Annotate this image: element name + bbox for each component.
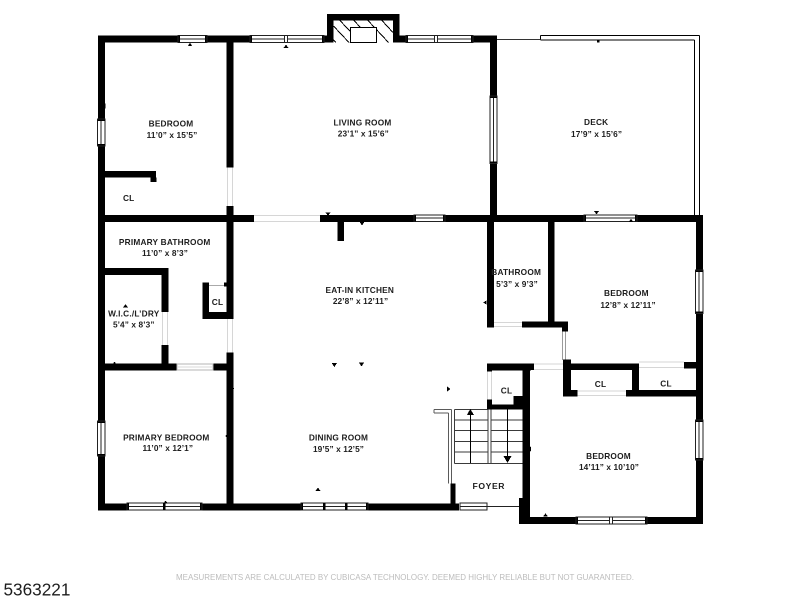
svg-text:DECK: DECK xyxy=(584,117,608,127)
svg-text:14’11” x 10’10”: 14’11” x 10’10” xyxy=(579,462,639,472)
svg-text:CL: CL xyxy=(501,386,512,396)
svg-text:12’8” x 12’11”: 12’8” x 12’11” xyxy=(600,300,655,310)
svg-text:22’8” x 12’11”: 22’8” x 12’11” xyxy=(333,296,388,306)
svg-text:BATHROOM: BATHROOM xyxy=(491,267,541,277)
svg-text:PRIMARY BEDROOM: PRIMARY BEDROOM xyxy=(123,433,209,443)
svg-text:LIVING ROOM: LIVING ROOM xyxy=(334,117,392,127)
svg-text:CL: CL xyxy=(212,297,223,307)
svg-text:17’9” x 15’6”: 17’9” x 15’6” xyxy=(571,129,622,139)
svg-text:CL: CL xyxy=(595,379,606,389)
svg-text:PRIMARY BATHROOM: PRIMARY BATHROOM xyxy=(119,237,211,247)
svg-text:5’4” x 8’3”: 5’4” x 8’3” xyxy=(113,320,155,330)
svg-text:CL: CL xyxy=(123,193,134,203)
svg-text:11’0” x 8’3”: 11’0” x 8’3” xyxy=(142,248,188,258)
svg-text:11’0” x 15’5”: 11’0” x 15’5” xyxy=(147,130,198,140)
svg-text:19’5” x 12’5”: 19’5” x 12’5” xyxy=(313,444,364,454)
svg-text:23’1” x 15’6”: 23’1” x 15’6” xyxy=(338,129,389,139)
svg-text:BEDROOM: BEDROOM xyxy=(149,119,194,129)
svg-text:5363221: 5363221 xyxy=(4,580,71,600)
svg-text:EAT-IN KITCHEN: EAT-IN KITCHEN xyxy=(326,285,395,295)
svg-text:11’0” x 12’1”: 11’0” x 12’1” xyxy=(142,443,193,453)
svg-text:MEASUREMENTS ARE CALCULATED BY: MEASUREMENTS ARE CALCULATED BY CUBICASA … xyxy=(176,572,634,582)
svg-text:W.I.C./L’DRY: W.I.C./L’DRY xyxy=(108,309,160,319)
svg-text:CL: CL xyxy=(660,379,671,389)
svg-text:DINING ROOM: DINING ROOM xyxy=(309,433,368,443)
svg-text:BEDROOM: BEDROOM xyxy=(604,288,649,298)
svg-text:FOYER: FOYER xyxy=(472,481,505,491)
svg-text:BEDROOM: BEDROOM xyxy=(586,451,631,461)
svg-text:5’3” x 9’3”: 5’3” x 9’3” xyxy=(496,279,538,289)
